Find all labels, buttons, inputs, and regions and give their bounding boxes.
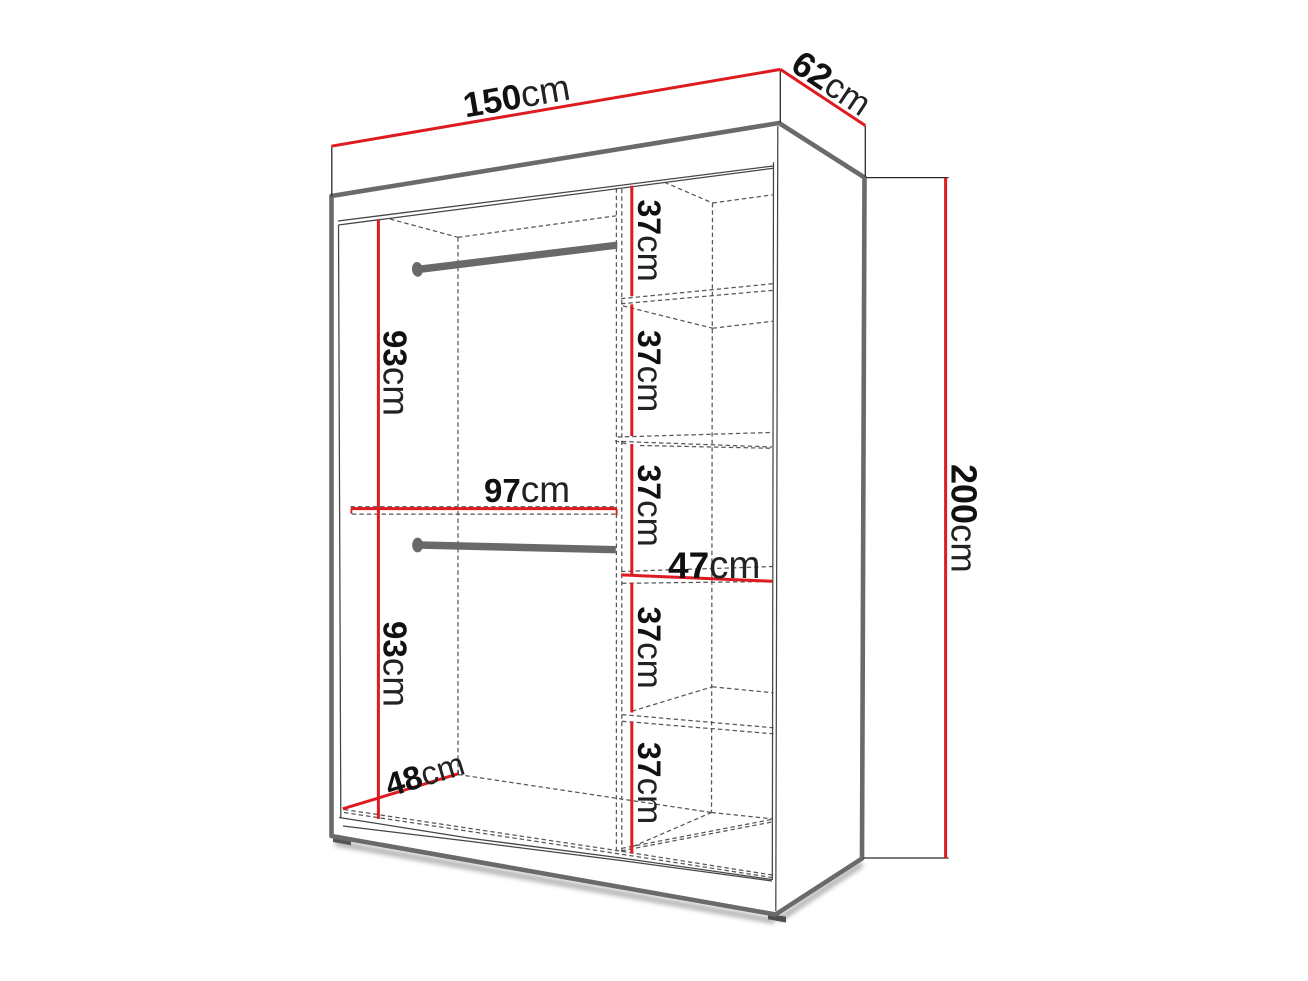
svg-text:47cm: 47cm [668,544,760,587]
svg-text:200cm: 200cm [944,464,985,573]
svg-text:97cm: 97cm [484,469,570,510]
svg-text:37cm: 37cm [630,330,669,412]
svg-text:37cm: 37cm [630,200,669,282]
svg-text:37cm: 37cm [630,465,669,547]
svg-text:93cm: 93cm [375,621,416,707]
svg-text:93cm: 93cm [375,330,416,416]
svg-text:37cm: 37cm [630,607,669,689]
svg-text:37cm: 37cm [630,742,669,824]
